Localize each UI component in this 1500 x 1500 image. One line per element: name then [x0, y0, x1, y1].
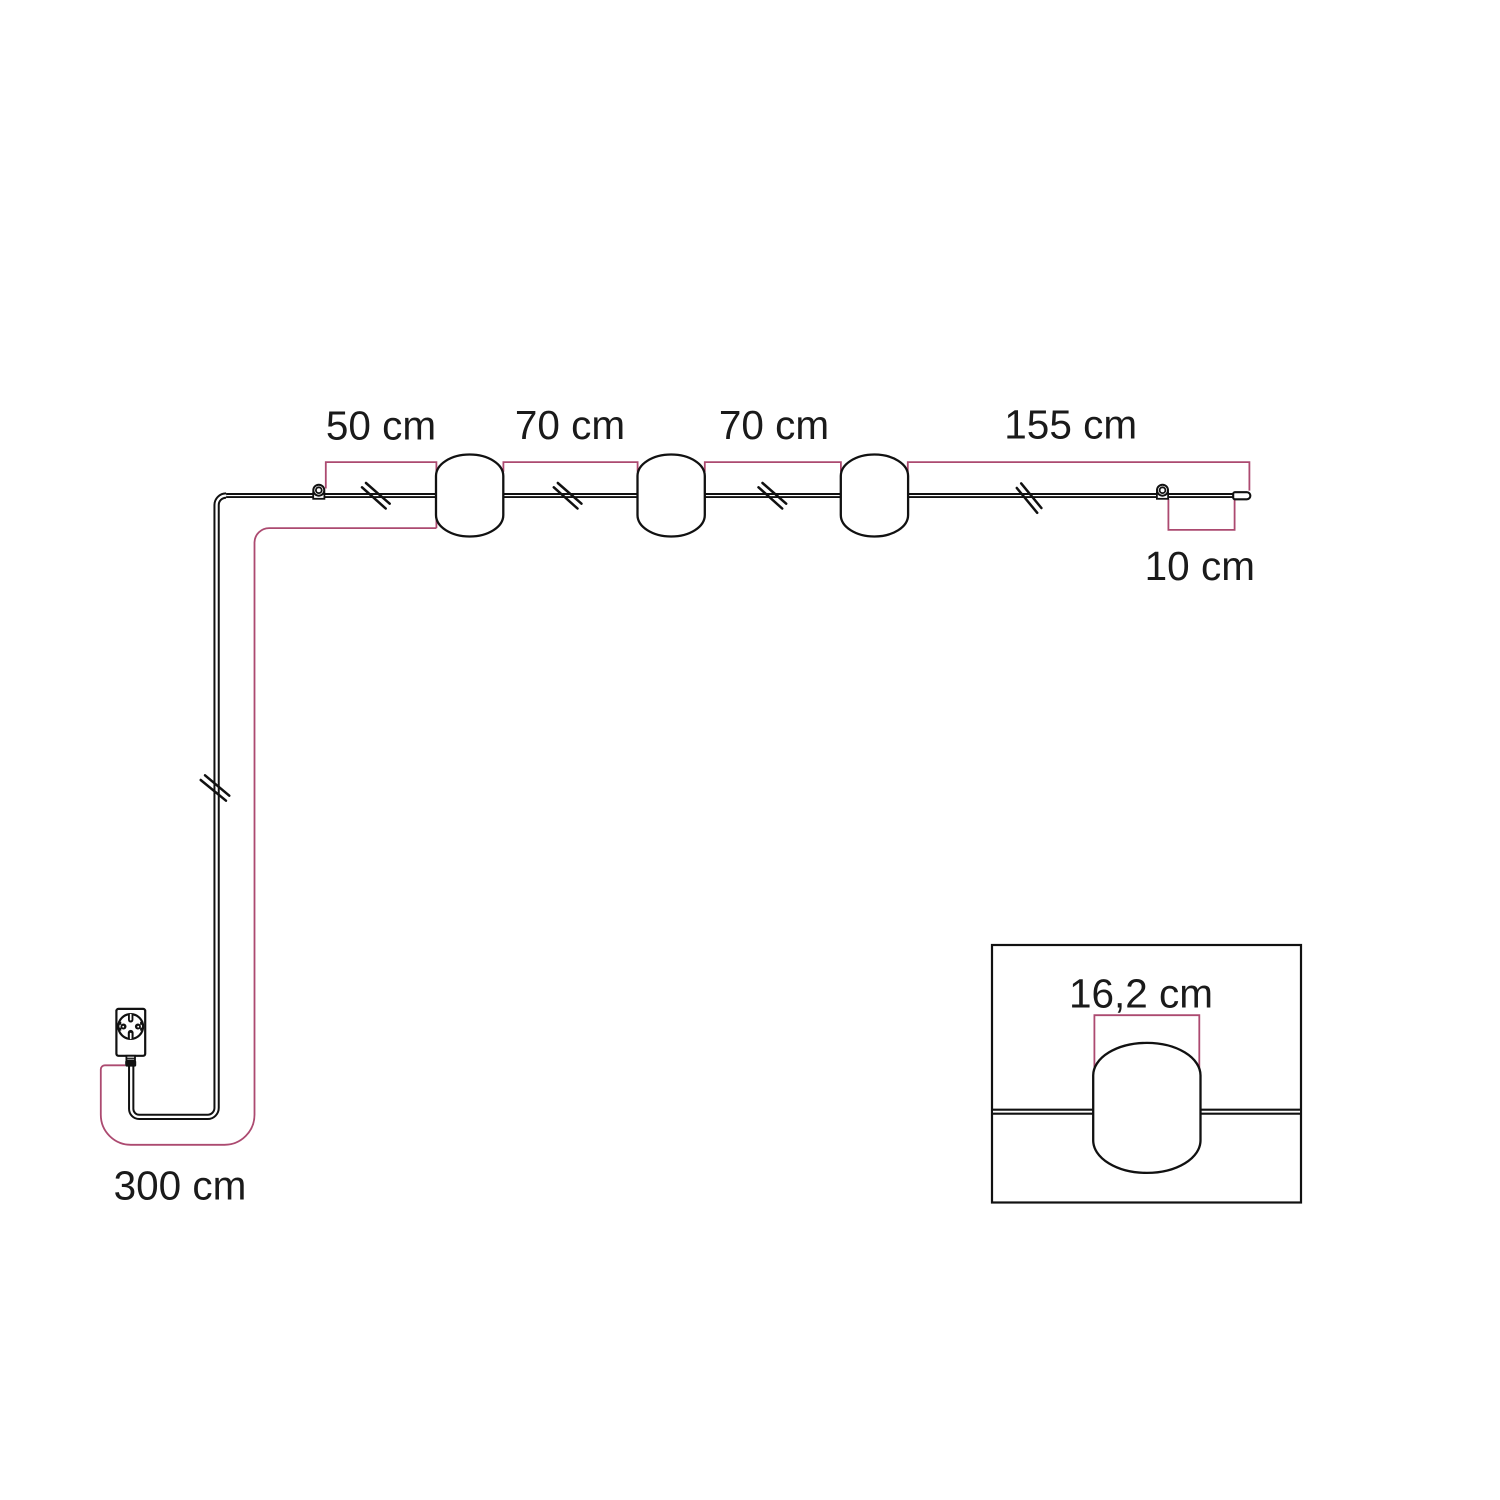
svg-text:155 cm: 155 cm [1004, 401, 1137, 447]
svg-text:10 cm: 10 cm [1145, 543, 1255, 589]
svg-text:300 cm: 300 cm [114, 1163, 247, 1209]
svg-text:70 cm: 70 cm [515, 402, 625, 448]
svg-text:50 cm: 50 cm [326, 402, 436, 448]
svg-text:16,2 cm: 16,2 cm [1069, 970, 1213, 1016]
svg-text:70 cm: 70 cm [719, 402, 829, 448]
